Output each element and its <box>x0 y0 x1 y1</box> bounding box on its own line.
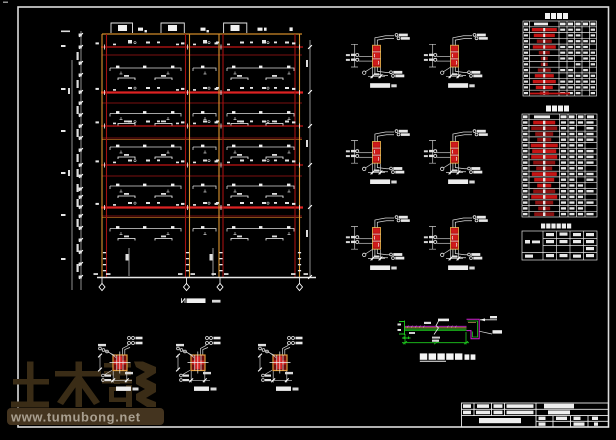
svg-text:www.tumubong.net: www.tumubong.net <box>10 410 141 425</box>
